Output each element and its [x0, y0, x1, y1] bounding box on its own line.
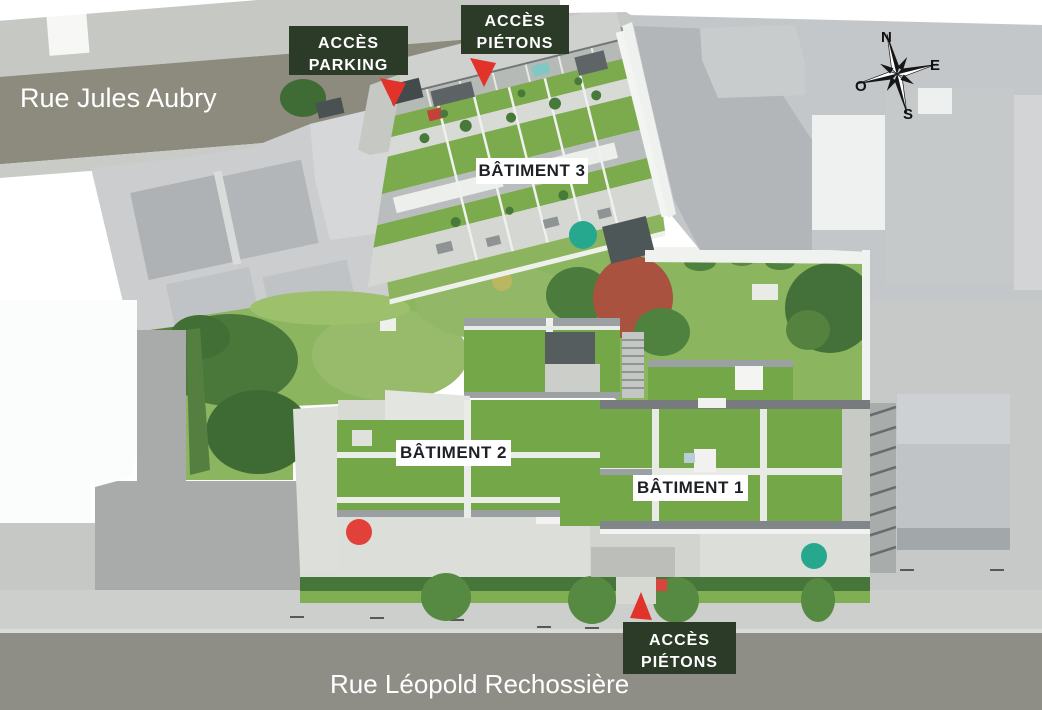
svg-text:S: S — [903, 106, 913, 123]
svg-text:N: N — [881, 29, 892, 46]
svg-text:O: O — [855, 78, 867, 95]
svg-text:E: E — [930, 57, 940, 74]
